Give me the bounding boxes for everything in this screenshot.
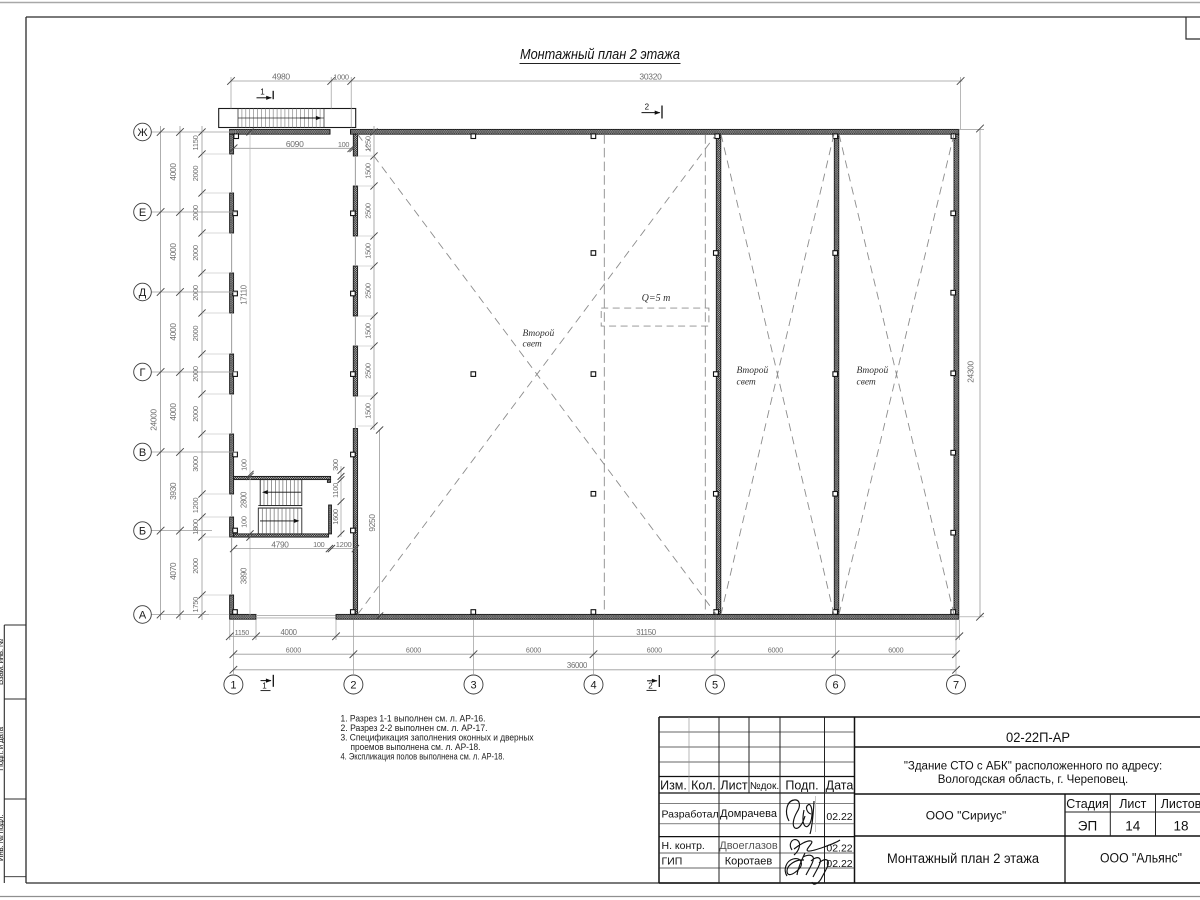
- svg-text:Дата: Дата: [826, 779, 854, 793]
- svg-text:2: 2: [645, 103, 650, 112]
- svg-text:1500: 1500: [364, 323, 373, 339]
- svg-text:Второй: Второй: [523, 328, 555, 339]
- svg-text:Подп.: Подп.: [785, 779, 818, 793]
- svg-text:2500: 2500: [364, 283, 373, 299]
- svg-text:24000: 24000: [149, 409, 159, 431]
- svg-text:4: 4: [590, 679, 596, 691]
- svg-text:Н. контр.: Н. контр.: [662, 840, 705, 852]
- svg-text:1800: 1800: [191, 519, 200, 535]
- svg-text:Г: Г: [140, 367, 146, 379]
- svg-text:2000: 2000: [191, 406, 200, 422]
- svg-text:2800: 2800: [240, 491, 249, 508]
- svg-text:А: А: [139, 609, 147, 621]
- svg-text:300: 300: [331, 459, 340, 471]
- svg-text:1: 1: [230, 679, 236, 691]
- svg-text:2000: 2000: [191, 558, 200, 574]
- svg-text:02.22: 02.22: [826, 858, 852, 870]
- svg-text:Монтажный план 2 этажа: Монтажный план 2 этажа: [520, 46, 680, 63]
- svg-text:1500: 1500: [364, 163, 373, 179]
- svg-text:2500: 2500: [364, 363, 373, 379]
- svg-text:свет: свет: [857, 378, 876, 388]
- svg-text:1100: 1100: [331, 483, 340, 498]
- svg-text:4000: 4000: [168, 323, 178, 341]
- svg-text:4000: 4000: [168, 163, 178, 181]
- svg-text:"Здание СТО с АБК" расположенн: "Здание СТО с АБК" расположенного по адр…: [904, 761, 1162, 773]
- svg-text:1150: 1150: [235, 628, 250, 637]
- svg-text:2000: 2000: [191, 285, 200, 301]
- svg-text:2: 2: [648, 681, 653, 690]
- svg-text:9250: 9250: [367, 514, 377, 532]
- svg-text:1: 1: [262, 682, 267, 691]
- svg-text:4980: 4980: [272, 72, 290, 82]
- svg-text:5: 5: [712, 679, 718, 691]
- svg-text:1750: 1750: [191, 597, 200, 613]
- svg-text:Д: Д: [139, 287, 147, 299]
- svg-text:1250: 1250: [364, 136, 373, 152]
- svg-text:ООО "Сириус": ООО "Сириус": [926, 809, 1006, 823]
- svg-text:4. Экспликация полов выполнена: 4. Экспликация полов выполнена см. л. АР…: [341, 752, 505, 762]
- svg-text:Кол.: Кол.: [691, 779, 716, 793]
- svg-text:Q=5 т: Q=5 т: [642, 293, 671, 304]
- svg-text:3930: 3930: [168, 482, 178, 500]
- svg-text:Лист: Лист: [720, 779, 747, 793]
- svg-text:1: 1: [260, 88, 265, 97]
- svg-text:свет: свет: [523, 340, 542, 350]
- svg-text:Второй: Второй: [737, 365, 769, 376]
- svg-text:100: 100: [313, 540, 325, 549]
- svg-text:6000: 6000: [526, 646, 541, 655]
- svg-text:6000: 6000: [768, 646, 783, 655]
- svg-text:Листов: Листов: [1161, 797, 1200, 811]
- svg-text:ГИП: ГИП: [662, 856, 683, 868]
- svg-text:6000: 6000: [888, 646, 903, 655]
- svg-text:Подп. и дата: Подп. и дата: [0, 726, 5, 770]
- svg-text:4790: 4790: [271, 539, 289, 549]
- svg-text:02-22П-АР: 02-22П-АР: [1006, 730, 1070, 745]
- svg-text:В: В: [139, 447, 146, 459]
- svg-text:Взам. инв. №: Взам. инв. №: [0, 638, 5, 685]
- svg-text:Ж: Ж: [137, 127, 147, 139]
- svg-text:1. Разрез 1-1 выполнен см. л.: 1. Разрез 1-1 выполнен см. л. АР-16.: [341, 713, 486, 723]
- svg-text:Изм.: Изм.: [660, 779, 687, 793]
- svg-text:100: 100: [240, 516, 249, 528]
- svg-text:2500: 2500: [364, 203, 373, 219]
- svg-text:ЭП: ЭП: [1078, 819, 1097, 834]
- svg-text:1200: 1200: [191, 498, 200, 514]
- svg-text:1000: 1000: [333, 73, 349, 82]
- svg-text:Лист: Лист: [1119, 797, 1146, 811]
- svg-text:2. Разрез 2-2 выполнен см. л.: 2. Разрез 2-2 выполнен см. л. АР-17.: [341, 723, 488, 733]
- svg-text:Второй: Второй: [857, 365, 889, 376]
- svg-text:2000: 2000: [191, 366, 200, 382]
- svg-text:№док.: №док.: [750, 781, 779, 792]
- svg-text:Домрачева: Домрачева: [720, 808, 778, 820]
- svg-text:1500: 1500: [364, 403, 373, 419]
- svg-text:3. Спецификация заполнения око: 3. Спецификация заполнения оконных и две…: [341, 733, 534, 743]
- svg-text:31150: 31150: [636, 628, 657, 637]
- svg-text:ООО "Альянс": ООО "Альянс": [1100, 851, 1182, 866]
- svg-text:6000: 6000: [406, 646, 421, 655]
- svg-text:Вологодская область, г. Черепо: Вологодская область, г. Череповец.: [938, 774, 1128, 786]
- svg-text:6: 6: [832, 679, 838, 691]
- svg-text:4000: 4000: [168, 243, 178, 261]
- svg-text:Е: Е: [139, 207, 146, 219]
- svg-text:4000: 4000: [168, 403, 178, 421]
- svg-text:Разработал: Разработал: [662, 809, 719, 821]
- svg-text:02.22: 02.22: [826, 811, 852, 823]
- svg-text:4000: 4000: [281, 628, 298, 637]
- svg-text:30320: 30320: [639, 72, 662, 82]
- svg-text:3000: 3000: [191, 456, 200, 472]
- svg-text:2000: 2000: [191, 245, 200, 261]
- svg-text:4070: 4070: [168, 562, 178, 580]
- svg-text:7: 7: [953, 679, 959, 691]
- svg-text:6090: 6090: [286, 139, 304, 149]
- svg-text:18: 18: [1173, 819, 1188, 834]
- svg-text:Стадия: Стадия: [1066, 797, 1109, 811]
- svg-text:14: 14: [1125, 819, 1141, 834]
- svg-text:3: 3: [470, 679, 476, 691]
- svg-text:100: 100: [240, 459, 249, 471]
- svg-text:2000: 2000: [191, 326, 200, 342]
- svg-text:1600: 1600: [331, 509, 340, 525]
- svg-text:Б: Б: [139, 526, 146, 538]
- svg-text:17110: 17110: [240, 284, 249, 305]
- svg-text:3890: 3890: [240, 567, 249, 584]
- svg-text:2: 2: [350, 679, 356, 691]
- svg-text:Коротаев: Коротаев: [725, 856, 773, 868]
- svg-text:24300: 24300: [966, 361, 976, 383]
- svg-text:1500: 1500: [364, 243, 373, 259]
- svg-text:Монтажный план 2 этажа: Монтажный план 2 этажа: [887, 851, 1039, 866]
- svg-text:проемов выполнена см. л. АР-18: проемов выполнена см. л. АР-18.: [351, 742, 481, 752]
- svg-text:2000: 2000: [191, 166, 200, 182]
- svg-text:Двоеглазов: Двоеглазов: [719, 840, 778, 852]
- svg-text:1150: 1150: [191, 135, 200, 150]
- svg-text:100: 100: [338, 140, 350, 149]
- svg-text:2000: 2000: [191, 205, 200, 221]
- svg-text:1200: 1200: [336, 540, 352, 549]
- svg-text:36000: 36000: [567, 661, 588, 670]
- svg-text:Инв. № подл.: Инв. № подл.: [0, 815, 5, 861]
- svg-text:6000: 6000: [647, 646, 662, 655]
- svg-text:6000: 6000: [286, 646, 301, 655]
- svg-text:свет: свет: [737, 378, 756, 388]
